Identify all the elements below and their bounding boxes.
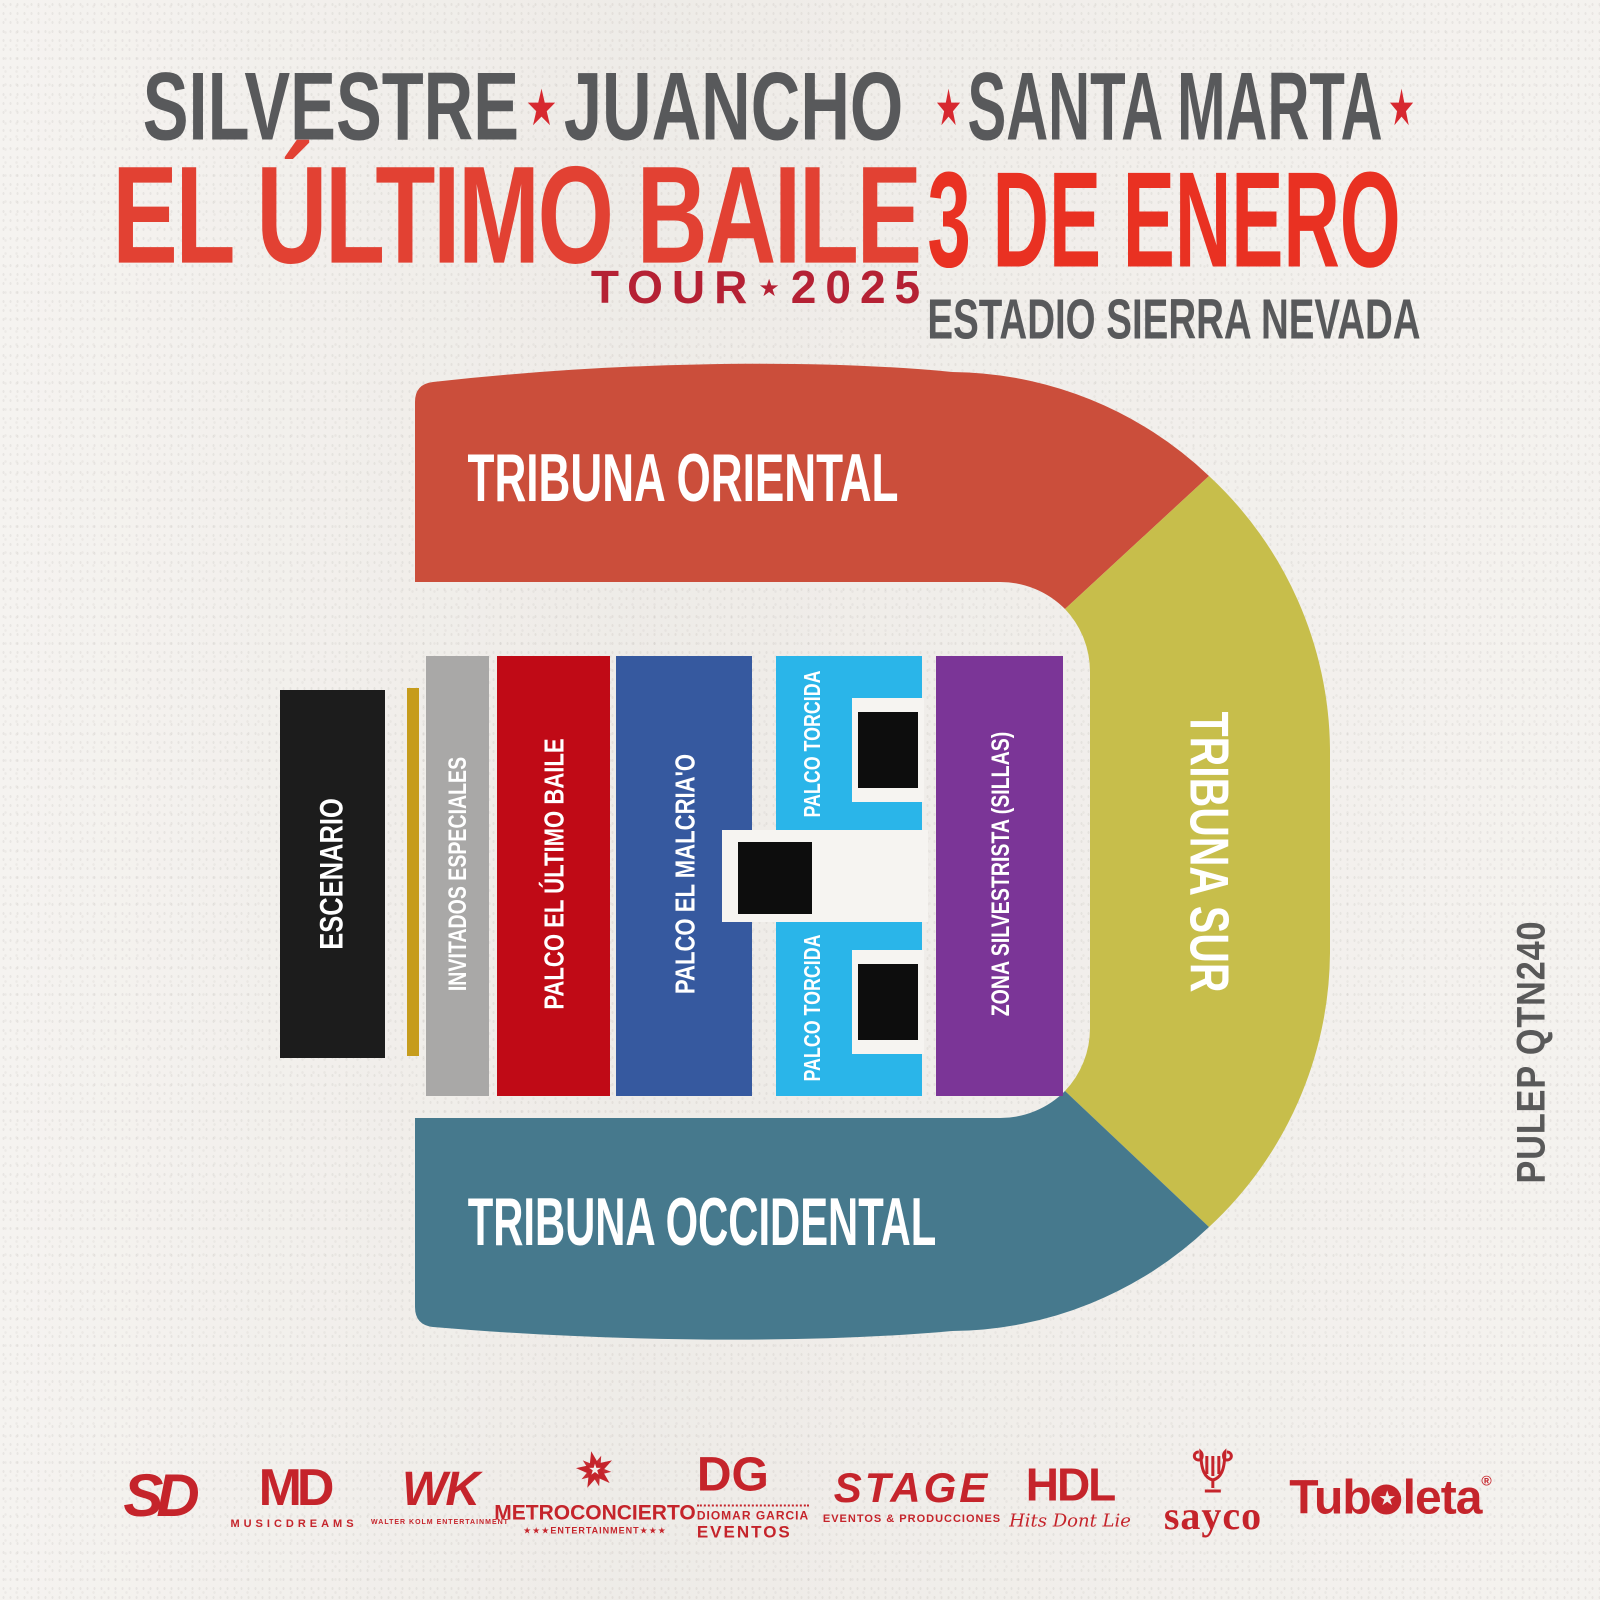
- label-torcida-top: PALCO TORCIDA: [802, 670, 825, 817]
- tuboleta-star-o-icon: ★: [1372, 1485, 1402, 1515]
- label-invitados-text: INVITADOS ESPECIALES: [443, 757, 471, 991]
- star-icon: ★: [1378, 1489, 1395, 1509]
- wk-logo: WK: [371, 1466, 509, 1514]
- label-palco-malcriao-text: PALCO EL MALCRIA'O: [669, 754, 701, 994]
- tower-center: [738, 842, 812, 914]
- label-torcida-top-text: PALCO TORCIDA: [801, 670, 826, 817]
- md-logo: MD: [230, 1462, 357, 1514]
- sd-logo: SD: [123, 1466, 192, 1526]
- label-invitados: INVITADOS ESPECIALES: [446, 757, 471, 991]
- metroconcierto-star-icon: ★ ★ ★: [569, 1445, 621, 1497]
- sponsor-walter-kolm: WK WALTER KOLM ENTERTAINMENT: [371, 1466, 509, 1526]
- dg-logo-sub2: EVENTOS: [697, 1524, 809, 1541]
- label-silvestrista: ZONA SILVESTRISTA (SILLAS): [989, 732, 1014, 1017]
- label-tribuna-occidental-text: TRIBUNA OCCIDENTAL: [468, 1185, 937, 1260]
- label-tribuna-occidental: TRIBUNA OCCIDENTAL: [468, 1189, 937, 1256]
- hdl-logo-sub: Hits Dont Lie: [1009, 1513, 1131, 1531]
- md-logo-sub: MUSICDREAMS: [230, 1519, 357, 1530]
- lyre-icon: [1191, 1448, 1235, 1494]
- label-tribuna-sur-text: TRIBUNA SUR: [1178, 712, 1240, 993]
- label-tribuna-oriental-text: TRIBUNA ORIENTAL: [468, 441, 899, 516]
- tuboleta-part1: Tub: [1289, 1472, 1370, 1525]
- label-torcida-bottom: PALCO TORCIDA: [802, 934, 825, 1081]
- metroconcierto-logo: METROCONCIERTO: [494, 1503, 695, 1524]
- pulep-code: PULEP QTN240: [1512, 921, 1552, 1184]
- dg-logo: DG: [697, 1452, 809, 1500]
- registered-mark: ®: [1481, 1473, 1490, 1489]
- sponsor-tuboleta: Tub★leta®: [1289, 1474, 1490, 1523]
- label-palco-malcriao: PALCO EL MALCRIA'O: [671, 754, 699, 994]
- stage-logo: STAGE: [823, 1467, 1001, 1509]
- label-tribuna-sur: TRIBUNA SUR: [1182, 712, 1237, 993]
- label-tribuna-oriental: TRIBUNA ORIENTAL: [468, 445, 899, 512]
- tower-bottom: [858, 964, 918, 1040]
- pulep-code-text: PULEP QTN240: [1510, 921, 1554, 1184]
- hdl-logo: HDL: [1009, 1462, 1131, 1508]
- sponsor-diomar-garcia: DG DIOMAR GARCIA EVENTOS: [697, 1452, 809, 1541]
- event-poster: SILVESTRE★JUANCHO EL ÚLTIMO BAILE TOUR★2…: [0, 0, 1600, 1600]
- sponsor-sayco: sayco: [1164, 1448, 1262, 1536]
- sponsor-stage: STAGE EVENTOS & PRODUCCIONES: [823, 1467, 1001, 1525]
- sponsor-musicdreams: MD MUSICDREAMS: [230, 1462, 357, 1530]
- label-palco-ultimo: PALCO EL ÚLTIMO BAILE: [540, 738, 568, 1009]
- label-escenario-text: ESCENARIO: [315, 798, 351, 950]
- barrier-bar: [407, 688, 419, 1056]
- tuboleta-part2: leta: [1403, 1472, 1482, 1525]
- star-icon: ★: [588, 1462, 601, 1477]
- dg-logo-sub1: DIOMAR GARCIA: [697, 1505, 809, 1522]
- sponsor-hdl: HDL Hits Dont Lie: [1009, 1462, 1131, 1531]
- label-silvestrista-text: ZONA SILVESTRISTA (SILLAS): [986, 732, 1014, 1017]
- sponsor-metroconcierto: ★ ★ ★ METROCONCIERTO ★★★ENTERTAINMENT★★★: [494, 1445, 695, 1536]
- stage-logo-sub: EVENTOS & PRODUCCIONES: [823, 1514, 1001, 1525]
- label-escenario: ESCENARIO: [317, 798, 349, 950]
- sponsor-sd-musicdreams: SD: [123, 1466, 192, 1526]
- tower-top: [858, 712, 918, 788]
- tuboleta-logo: Tub★leta®: [1289, 1474, 1490, 1523]
- metroconcierto-logo-sub: ★★★ENTERTAINMENT★★★: [494, 1527, 695, 1536]
- wk-logo-sub: WALTER KOLM ENTERTAINMENT: [371, 1519, 509, 1526]
- sayco-logo: sayco: [1164, 1496, 1262, 1536]
- label-palco-ultimo-text: PALCO EL ÚLTIMO BAILE: [538, 738, 570, 1009]
- label-torcida-bottom-text: PALCO TORCIDA: [801, 934, 826, 1081]
